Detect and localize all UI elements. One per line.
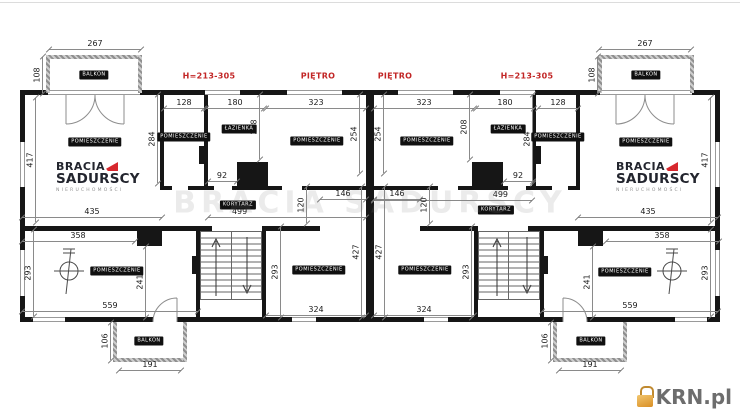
dimension-label: 108 bbox=[33, 67, 42, 82]
room-label: BALKON bbox=[576, 337, 605, 346]
dimension-label: 427 bbox=[375, 244, 384, 259]
room-label: POMIESZCZENIE bbox=[619, 138, 672, 147]
padlock-icon bbox=[637, 386, 653, 407]
room-label: POMIESZCZENIE bbox=[398, 266, 451, 275]
room-label: POMIESZCZENIE bbox=[292, 266, 345, 275]
dimension: 254 bbox=[359, 95, 360, 173]
room-label: POMIESZCZENIE bbox=[157, 133, 210, 142]
room-label: POMIESZCZENIE bbox=[400, 137, 453, 146]
dimension-label: 92 bbox=[217, 171, 227, 180]
dimension-label: 208 bbox=[460, 119, 469, 134]
floor-annotation: H=213-305 bbox=[183, 72, 236, 81]
dimension-label: 108 bbox=[588, 67, 597, 82]
room-label: POMIESZCZENIE bbox=[68, 138, 121, 147]
dimension-label: 324 bbox=[416, 305, 431, 314]
dimension: 180 bbox=[476, 108, 534, 109]
dimension: 241 bbox=[145, 247, 146, 317]
ceiling-fan-symbol-left bbox=[54, 249, 84, 294]
dimension: 417 bbox=[710, 98, 711, 222]
krn-pl-label: KRN.pl bbox=[656, 387, 732, 407]
dimension-label: 293 bbox=[271, 264, 280, 279]
dimension-label: 92 bbox=[513, 171, 523, 180]
dimension-label: 358 bbox=[70, 231, 85, 240]
dimension-label: 191 bbox=[582, 360, 597, 369]
dimension: 92 bbox=[208, 181, 237, 182]
dimension: 254 bbox=[383, 95, 384, 173]
dimension: 435 bbox=[578, 217, 718, 218]
stair-arrows-right bbox=[493, 237, 531, 296]
dimension: 241 bbox=[592, 247, 593, 317]
dimension-label: 435 bbox=[84, 207, 99, 216]
logo-line-sadurscy: SADURSCY bbox=[56, 172, 120, 186]
room-label: ŁAZIENKA bbox=[222, 125, 257, 134]
dimension-label: 128 bbox=[550, 98, 565, 107]
dimension: 358 bbox=[606, 241, 719, 242]
agency-watermark: BRACIA SADURSCY bbox=[173, 186, 567, 221]
dimension-label: 284 bbox=[523, 131, 532, 146]
dimension-label: 435 bbox=[640, 207, 655, 216]
dimension-label: 427 bbox=[352, 244, 361, 259]
dimension: 106 bbox=[550, 323, 551, 360]
dimension: 417 bbox=[35, 98, 36, 222]
dimension: 267 bbox=[599, 49, 691, 50]
dimension-label: 293 bbox=[24, 265, 33, 280]
dimension-label: 180 bbox=[227, 98, 242, 107]
dimension: 293 bbox=[33, 230, 34, 316]
dimension: 293 bbox=[471, 227, 472, 317]
dimension: 323 bbox=[266, 108, 366, 109]
staircase-left bbox=[200, 232, 262, 300]
dimension: 106 bbox=[110, 323, 111, 360]
dimension-label: 254 bbox=[374, 126, 383, 141]
floor-annotation: PIĘTRO bbox=[378, 72, 413, 81]
dimension-label: 106 bbox=[101, 333, 110, 348]
krn-pl-watermark: KRN.pl bbox=[637, 386, 732, 407]
dimension: 559 bbox=[22, 311, 198, 312]
room-label: POMIESZCZENIE bbox=[531, 133, 584, 142]
floor-annotation: H=213-305 bbox=[501, 72, 554, 81]
dimension-label: 559 bbox=[622, 301, 637, 310]
logo-line-nieruchomosci: NIERUCHOMOŚCI bbox=[616, 188, 680, 193]
logo-roof-icon bbox=[106, 162, 118, 171]
room-label: BALKON bbox=[631, 71, 660, 80]
room-label: ŁAZIENKA bbox=[491, 125, 526, 134]
agency-logo-left: BRACIA SADURSCY NIERUCHOMOŚCI bbox=[56, 161, 120, 193]
ceiling-fan-symbol-right bbox=[657, 249, 687, 294]
dimension: 559 bbox=[542, 311, 718, 312]
dimension: 92 bbox=[504, 181, 533, 182]
dimension-label: 293 bbox=[701, 265, 710, 280]
dimension: 358 bbox=[22, 241, 135, 242]
dimension-label: 267 bbox=[87, 39, 102, 48]
dimension-label: 241 bbox=[136, 274, 145, 289]
dimension-label: 191 bbox=[142, 360, 157, 369]
floor-plan-image: 2671081281803232842082549241743549914612… bbox=[0, 0, 740, 416]
floor-annotation: PIĘTRO bbox=[301, 72, 336, 81]
dimension-label: 324 bbox=[308, 305, 323, 314]
dimension: 324 bbox=[374, 315, 474, 316]
dimension-label: 284 bbox=[148, 131, 157, 146]
dimension: 191 bbox=[559, 370, 621, 371]
dimension-label: 106 bbox=[541, 333, 550, 348]
dimension: 323 bbox=[374, 108, 474, 109]
dimension: 267 bbox=[49, 49, 141, 50]
dimension: 108 bbox=[42, 57, 43, 93]
dimension-label: 128 bbox=[176, 98, 191, 107]
dimension: 180 bbox=[206, 108, 264, 109]
dimension: 208 bbox=[469, 95, 470, 159]
dimension-label: 293 bbox=[462, 264, 471, 279]
room-label: POMIESZCZENIE bbox=[90, 267, 143, 276]
dimension: 208 bbox=[259, 95, 260, 159]
dimension-label: 267 bbox=[637, 39, 652, 48]
room-label: BALKON bbox=[79, 71, 108, 80]
dimension: 293 bbox=[280, 227, 281, 317]
dimension-label: 323 bbox=[308, 98, 323, 107]
dimension-label: 241 bbox=[583, 274, 592, 289]
dimension: 128 bbox=[164, 108, 204, 109]
dimension: 191 bbox=[119, 370, 181, 371]
room-label: POMIESZCZENIE bbox=[290, 137, 343, 146]
logo-roof-icon bbox=[666, 162, 678, 171]
dimension: 435 bbox=[22, 217, 162, 218]
dimension: 128 bbox=[538, 108, 578, 109]
dimension: 324 bbox=[266, 315, 366, 316]
staircase-right bbox=[478, 232, 540, 300]
agency-logo-right: BRACIA SADURSCY NIERUCHOMOŚCI bbox=[616, 161, 680, 193]
dimension-label: 323 bbox=[416, 98, 431, 107]
room-label: BALKON bbox=[134, 337, 163, 346]
dimension: 293 bbox=[710, 230, 711, 316]
dimension-label: 254 bbox=[350, 126, 359, 141]
dimension-label: 417 bbox=[26, 152, 35, 167]
dimension-label: 358 bbox=[654, 231, 669, 240]
dimension-label: 180 bbox=[497, 98, 512, 107]
dimension-label: 559 bbox=[102, 301, 117, 310]
room-label: POMIESZCZENIE bbox=[598, 268, 651, 277]
dimension: 108 bbox=[597, 57, 598, 93]
logo-line-nieruchomosci: NIERUCHOMOŚCI bbox=[56, 188, 120, 193]
dimension-label: 417 bbox=[701, 152, 710, 167]
logo-line-sadurscy: SADURSCY bbox=[616, 172, 680, 186]
